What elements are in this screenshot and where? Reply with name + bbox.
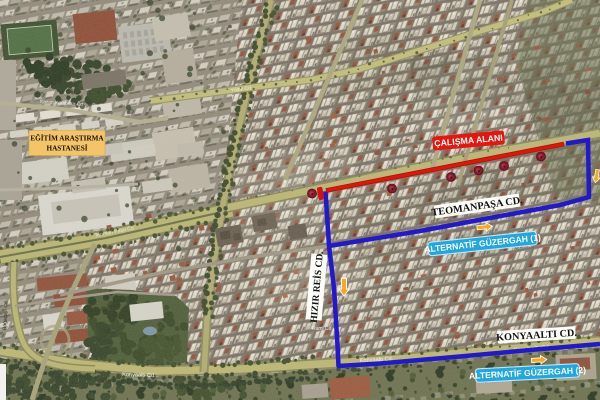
svg-text:EĞİTİM ARAŞTIRMA: EĞİTİM ARAŞTIRMA (30, 133, 104, 143)
svg-text:HASTANESİ: HASTANESİ (46, 143, 87, 153)
